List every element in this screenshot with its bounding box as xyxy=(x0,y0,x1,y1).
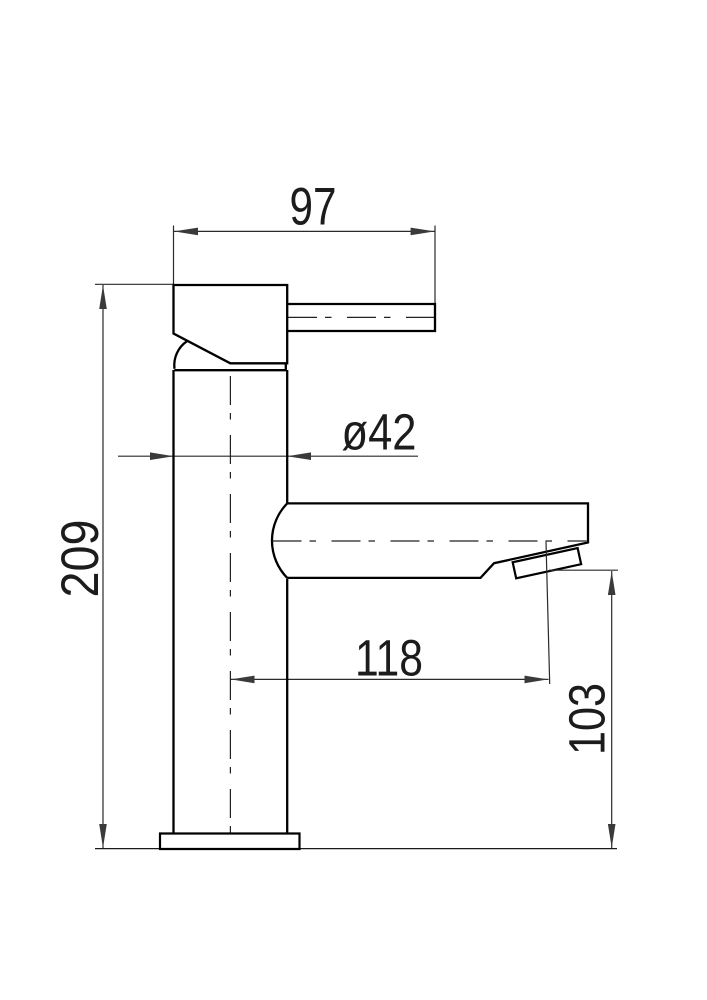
svg-text:103: 103 xyxy=(559,683,616,755)
svg-text:97: 97 xyxy=(290,178,337,237)
svg-text:118: 118 xyxy=(355,630,423,687)
svg-text:209: 209 xyxy=(51,520,110,598)
svg-text:ø42: ø42 xyxy=(342,404,417,461)
